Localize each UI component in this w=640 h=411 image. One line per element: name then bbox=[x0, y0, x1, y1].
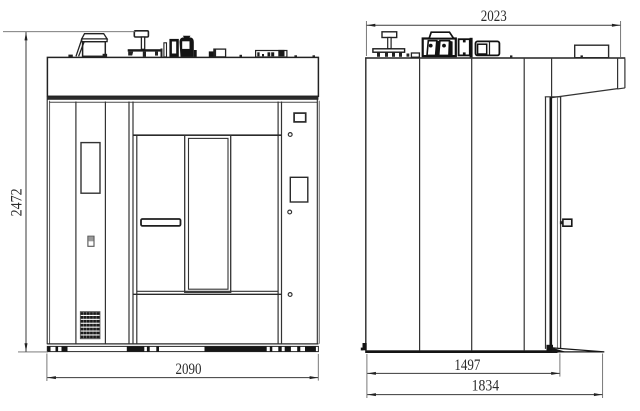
svg-text:1497: 1497 bbox=[454, 357, 480, 374]
svg-text:1834: 1834 bbox=[472, 378, 500, 395]
svg-text:2090: 2090 bbox=[176, 361, 202, 378]
svg-text:2472: 2472 bbox=[8, 188, 25, 216]
svg-text:2023: 2023 bbox=[481, 8, 507, 25]
